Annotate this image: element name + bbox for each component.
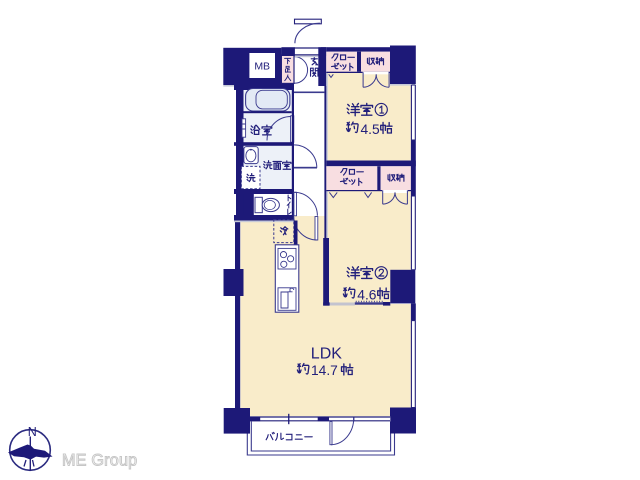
- svg-text:LDK: LDK: [311, 346, 342, 363]
- svg-text:MB: MB: [254, 61, 270, 73]
- svg-text:N: N: [28, 425, 37, 439]
- svg-text:4.6: 4.6: [357, 287, 377, 302]
- svg-text:4.5: 4.5: [361, 122, 381, 137]
- svg-text:14.7: 14.7: [311, 363, 338, 378]
- svg-text:ME Group: ME Group: [62, 451, 137, 469]
